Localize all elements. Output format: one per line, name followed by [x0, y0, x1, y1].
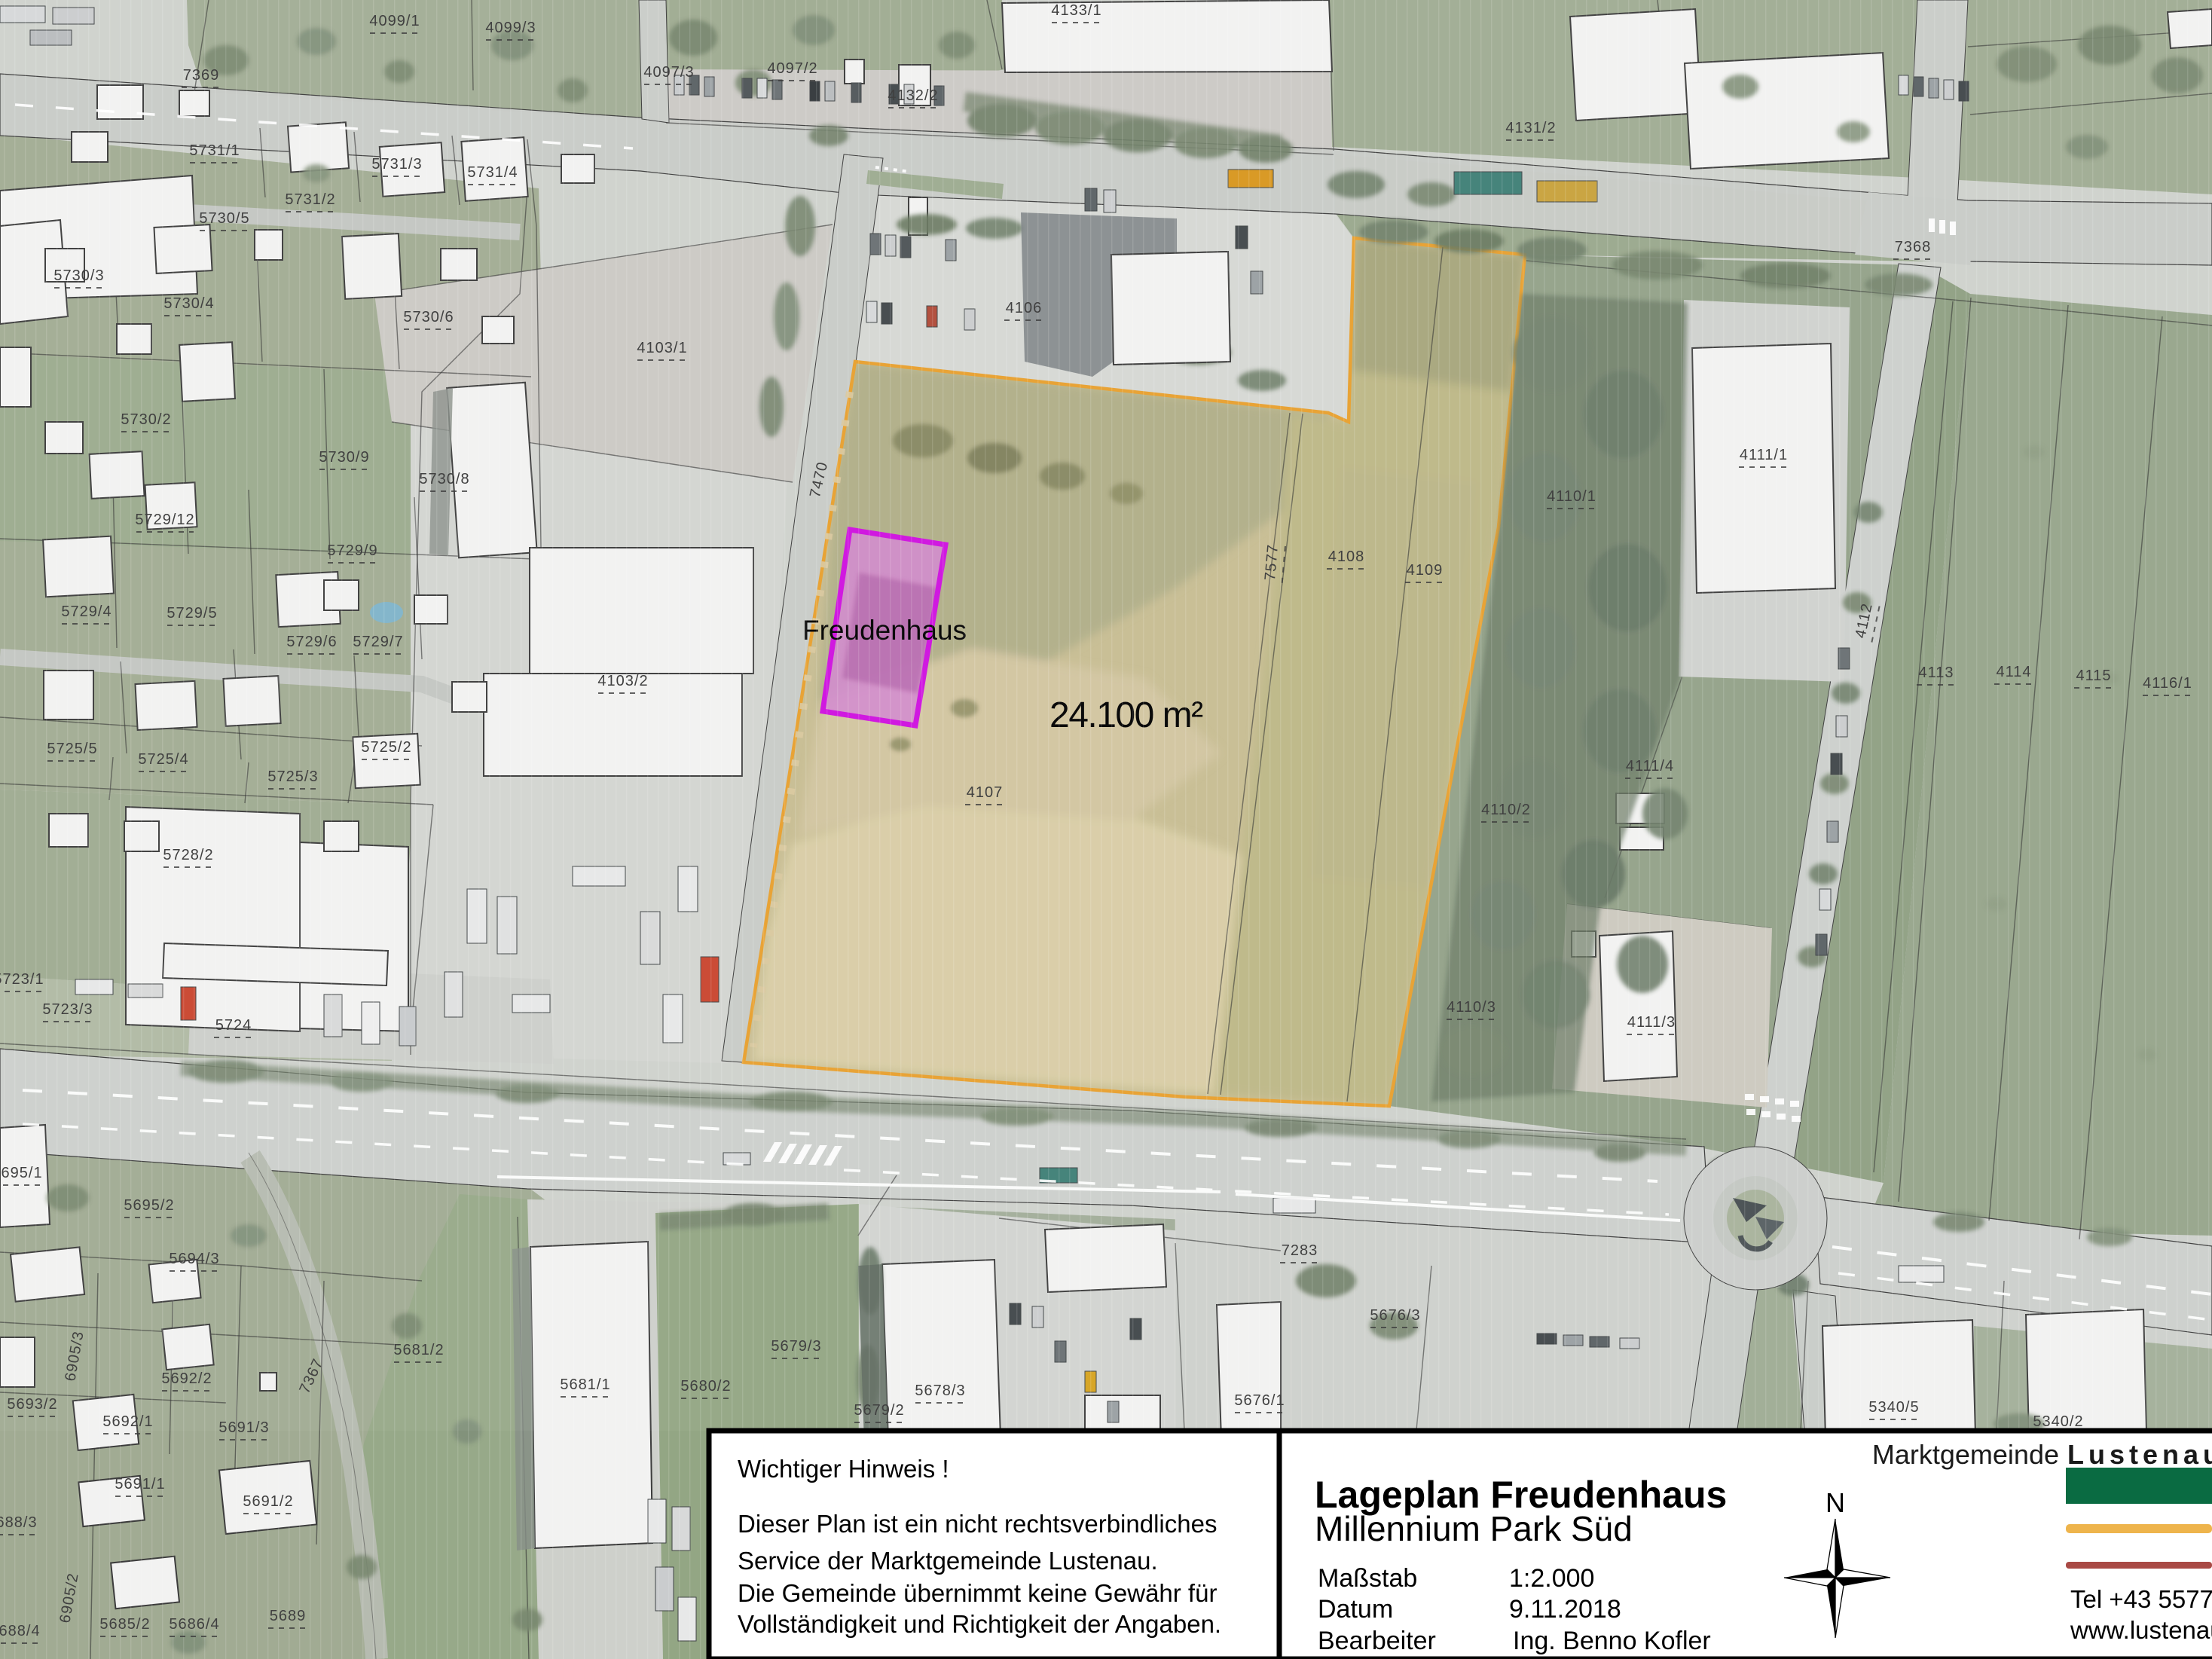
svg-text:4133/1: 4133/1	[1051, 2, 1101, 19]
svg-text:5731/1: 5731/1	[189, 142, 240, 159]
svg-text:5730/9: 5730/9	[319, 449, 369, 466]
svg-text:5692/2: 5692/2	[161, 1370, 212, 1387]
svg-text:4114: 4114	[1996, 664, 2031, 680]
svg-text:www.lustenau.at: www.lustenau.at	[2070, 1616, 2212, 1644]
svg-text:4132/2: 4132/2	[888, 87, 938, 104]
svg-text:5729/6: 5729/6	[286, 634, 337, 650]
svg-text:Tel +43 5577 8181-0: Tel +43 5577 8181-0	[2070, 1585, 2212, 1613]
svg-text:5730/4: 5730/4	[163, 295, 214, 312]
svg-text:Marktgemeinde: Marktgemeinde	[1872, 1439, 2059, 1470]
svg-text:Lustenau: Lustenau	[2067, 1439, 2212, 1470]
svg-text:N: N	[1826, 1487, 1845, 1518]
svg-text:5730/2: 5730/2	[121, 411, 171, 428]
svg-text:4103/2: 4103/2	[597, 673, 648, 689]
svg-text:5725/3: 5725/3	[267, 768, 318, 785]
svg-text:5725/4: 5725/4	[138, 751, 188, 768]
svg-text:5729/9: 5729/9	[327, 542, 377, 559]
svg-text:4106: 4106	[1006, 300, 1043, 316]
svg-text:5729/7: 5729/7	[353, 634, 403, 650]
svg-text:5691/2: 5691/2	[243, 1493, 293, 1510]
svg-text:5723/3: 5723/3	[42, 1001, 93, 1018]
svg-text:4097/2: 4097/2	[767, 60, 817, 77]
svg-text:4103/1: 4103/1	[637, 340, 687, 356]
svg-text:5691/1: 5691/1	[115, 1476, 165, 1492]
svg-text:4110/2: 4110/2	[1481, 802, 1531, 818]
svg-text:4097/3: 4097/3	[643, 64, 694, 81]
svg-text:7577: 7577	[1262, 543, 1282, 581]
svg-text:5695/2: 5695/2	[124, 1197, 174, 1214]
svg-text:5692/1: 5692/1	[102, 1413, 153, 1430]
svg-text:5731/3: 5731/3	[371, 156, 422, 173]
svg-text:5685/2: 5685/2	[99, 1616, 150, 1633]
svg-text:5340/5: 5340/5	[1868, 1399, 1919, 1416]
svg-text:7369: 7369	[183, 67, 220, 84]
svg-text:5729/4: 5729/4	[61, 603, 112, 620]
svg-text:4099/1: 4099/1	[369, 13, 420, 29]
svg-text:5730/5: 5730/5	[199, 210, 249, 227]
svg-text:5731/4: 5731/4	[467, 164, 518, 181]
svg-text:4109: 4109	[1407, 562, 1444, 579]
svg-text:1:2.000: 1:2.000	[1509, 1564, 1594, 1593]
svg-text:5678/3: 5678/3	[915, 1382, 965, 1399]
svg-text:5728/2: 5728/2	[163, 847, 213, 863]
svg-text:Service der Marktgemeinde Lust: Service der Marktgemeinde Lustenau.	[738, 1547, 1158, 1575]
svg-text:4111/3: 4111/3	[1627, 1014, 1676, 1031]
svg-text:4099/3: 4099/3	[485, 20, 536, 36]
svg-text:Dieser Plan ist ein nicht rech: Dieser Plan ist ein nicht rechtsverbindl…	[738, 1510, 1217, 1538]
svg-text:Die Gemeinde übernimmt keine G: Die Gemeinde übernimmt keine Gewähr für	[738, 1579, 1217, 1607]
svg-text:5725/5: 5725/5	[47, 741, 97, 757]
svg-text:5723/1: 5723/1	[0, 971, 44, 988]
svg-text:Vollständigkeit und Richtigkei: Vollständigkeit und Richtigkeit der Anga…	[738, 1610, 1221, 1638]
svg-text:5676/1: 5676/1	[1234, 1392, 1285, 1409]
svg-text:5724: 5724	[215, 1017, 252, 1034]
svg-text:Bearbeiter: Bearbeiter	[1318, 1627, 1436, 1655]
svg-text:4113: 4113	[1918, 665, 1954, 681]
svg-text:5730/3: 5730/3	[53, 267, 104, 284]
svg-text:5691/3: 5691/3	[218, 1419, 269, 1436]
svg-text:7283: 7283	[1282, 1242, 1318, 1259]
svg-text:5679/3: 5679/3	[771, 1338, 821, 1355]
svg-text:5730/6: 5730/6	[403, 309, 454, 325]
svg-text:4111/4: 4111/4	[1626, 758, 1674, 775]
svg-text:4108: 4108	[1328, 548, 1365, 565]
svg-text:Millennium Park Süd: Millennium Park Süd	[1315, 1509, 1633, 1548]
svg-text:5680/2: 5680/2	[680, 1378, 731, 1395]
svg-text:Wichtiger Hinweis !: Wichtiger Hinweis !	[738, 1455, 949, 1483]
svg-text:4115: 4115	[2076, 668, 2111, 684]
svg-text:4131/2: 4131/2	[1505, 120, 1556, 136]
svg-text:4107: 4107	[967, 784, 1004, 801]
svg-text:9.11.2018: 9.11.2018	[1509, 1595, 1621, 1624]
svg-text:5340/2: 5340/2	[2033, 1413, 2083, 1430]
svg-text:Ing. Benno Kofler: Ing. Benno Kofler	[1513, 1627, 1711, 1655]
svg-text:4116/1: 4116/1	[2143, 675, 2192, 692]
svg-text:5686/4: 5686/4	[169, 1616, 219, 1633]
svg-text:4110/3: 4110/3	[1447, 999, 1496, 1016]
svg-text:Maßstab: Maßstab	[1318, 1564, 1417, 1593]
svg-text:4111/1: 4111/1	[1740, 447, 1788, 463]
svg-text:Datum: Datum	[1318, 1595, 1393, 1624]
svg-text:5681/1: 5681/1	[560, 1376, 610, 1393]
svg-text:5681/2: 5681/2	[393, 1342, 444, 1358]
svg-text:4110/1: 4110/1	[1547, 488, 1596, 505]
svg-text:5729/5: 5729/5	[167, 605, 217, 622]
svg-text:5679/2: 5679/2	[854, 1402, 904, 1419]
svg-text:5731/2: 5731/2	[285, 191, 335, 208]
svg-text:5688/3: 5688/3	[0, 1514, 38, 1531]
svg-text:5730/8: 5730/8	[419, 471, 469, 487]
svg-text:5688/4: 5688/4	[0, 1623, 41, 1639]
svg-text:5689: 5689	[270, 1608, 307, 1624]
svg-text:5693/2: 5693/2	[7, 1396, 57, 1413]
svg-text:5694/3: 5694/3	[169, 1251, 219, 1267]
svg-text:5695/1: 5695/1	[0, 1165, 43, 1181]
svg-text:5725/2: 5725/2	[361, 739, 411, 756]
svg-text:7368: 7368	[1895, 239, 1932, 255]
svg-text:5729/12: 5729/12	[135, 512, 194, 528]
svg-text:5676/3: 5676/3	[1370, 1307, 1420, 1324]
